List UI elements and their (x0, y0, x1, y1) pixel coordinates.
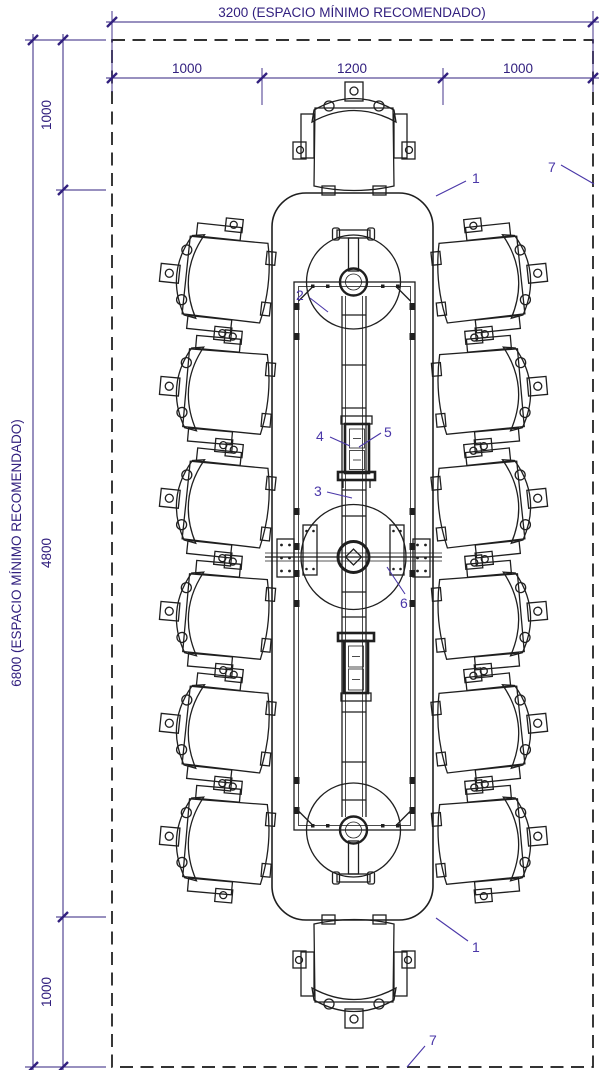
dim-label-top-center: 1200 (337, 61, 367, 76)
chair-head-bottom (293, 915, 415, 1028)
dim-label-left-total: 6800 (ESPACIO MÍNIMO RECOMENDADO) (9, 419, 24, 687)
dimension-left-segments: 1000 4800 1000 (39, 34, 106, 1070)
callout-2-frame: 2 (296, 287, 304, 303)
callout-7-top: 7 (548, 159, 556, 175)
chair-left-4 (155, 550, 278, 681)
chair-right-6 (429, 775, 552, 906)
chair-head-top (293, 82, 415, 195)
frame-mount-blocks (295, 285, 415, 828)
chair-left-2 (155, 325, 278, 456)
callout-6-bracket: 6 (400, 595, 408, 611)
technical-drawing-page: 3200 (ESPACIO MÍNIMO RECOMENDADO) 1000 1… (0, 0, 600, 1070)
chair-right-2 (429, 325, 552, 456)
plan-drawing: 3200 (ESPACIO MÍNIMO RECOMENDADO) 1000 1… (0, 0, 600, 1070)
callouts: 1 7 2 3 4 5 6 1 7 (296, 159, 594, 1067)
chair-left-6 (155, 775, 278, 906)
leg-foot-bottom (333, 817, 375, 885)
callout-3-cable-tray: 3 (314, 483, 322, 499)
beam-plate-left-outer (277, 539, 294, 577)
dim-label-top-left: 1000 (172, 61, 202, 76)
dim-label-left-bottom: 1000 (39, 977, 54, 1007)
power-module-lower (338, 633, 374, 701)
callout-1-bottom: 1 (472, 939, 480, 955)
callout-7-bottom: 7 (429, 1032, 437, 1048)
callout-1-top: 1 (472, 170, 480, 186)
chair-right-3 (428, 437, 553, 570)
callout-5-power-lid: 5 (384, 424, 392, 440)
table-frame (294, 282, 415, 830)
chair-right-5 (428, 662, 553, 795)
dimension-left-total: 6800 (ESPACIO MÍNIMO RECOMENDADO) (9, 34, 106, 1070)
chair-left-3 (154, 437, 279, 570)
dim-label-top-right: 1000 (503, 61, 533, 76)
chair-right-1 (428, 212, 553, 345)
beam-plate-right-inner (390, 525, 404, 575)
chair-left-5 (154, 662, 279, 795)
chair-left-1 (154, 212, 279, 345)
conference-table (265, 193, 442, 920)
power-module-upper (338, 416, 375, 488)
leg-foot-top (333, 228, 375, 296)
dim-label-left-top: 1000 (39, 100, 54, 130)
dim-label-top-total: 3200 (ESPACIO MÍNIMO RECOMENDADO) (218, 5, 486, 20)
callout-4-power-module: 4 (316, 428, 324, 444)
dim-label-left-middle: 4800 (39, 538, 54, 568)
chair-right-4 (429, 550, 552, 681)
chairs (154, 82, 553, 1028)
beam-plate-left-inner (303, 525, 317, 575)
dimension-top-total: 3200 (ESPACIO MÍNIMO RECOMENDADO) (106, 5, 599, 92)
